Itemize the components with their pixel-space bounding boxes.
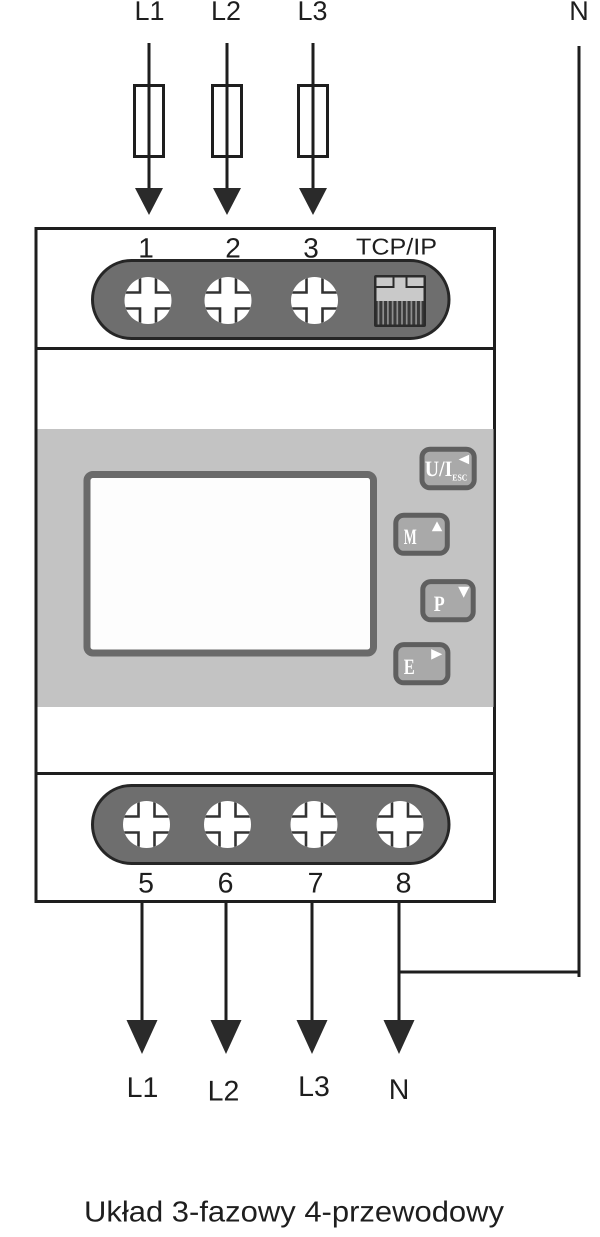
svg-text:3: 3 bbox=[303, 233, 319, 264]
svg-text:M: M bbox=[404, 524, 417, 549]
svg-text:Układ 3-fazowy 4-przewodowy: Układ 3-fazowy 4-przewodowy bbox=[84, 1197, 505, 1229]
svg-text:L1: L1 bbox=[134, 0, 164, 26]
svg-text:1: 1 bbox=[138, 233, 154, 264]
svg-text:L2: L2 bbox=[208, 1076, 240, 1108]
svg-text:2: 2 bbox=[225, 233, 241, 264]
svg-text:TCP/IP: TCP/IP bbox=[356, 234, 437, 260]
svg-text:8: 8 bbox=[396, 868, 412, 900]
svg-text:N: N bbox=[569, 0, 589, 26]
svg-text:L3: L3 bbox=[297, 0, 327, 26]
svg-text:7: 7 bbox=[308, 868, 324, 900]
svg-text:P: P bbox=[434, 591, 445, 616]
svg-text:L3: L3 bbox=[298, 1071, 330, 1103]
svg-text:E: E bbox=[404, 654, 415, 679]
svg-text:ESC: ESC bbox=[452, 473, 467, 483]
svg-text:L1: L1 bbox=[127, 1072, 159, 1104]
svg-text:N: N bbox=[389, 1074, 410, 1106]
svg-text:L2: L2 bbox=[211, 0, 241, 26]
svg-text:U/I: U/I bbox=[425, 456, 453, 481]
svg-text:6: 6 bbox=[218, 868, 234, 900]
svg-text:5: 5 bbox=[138, 868, 154, 900]
